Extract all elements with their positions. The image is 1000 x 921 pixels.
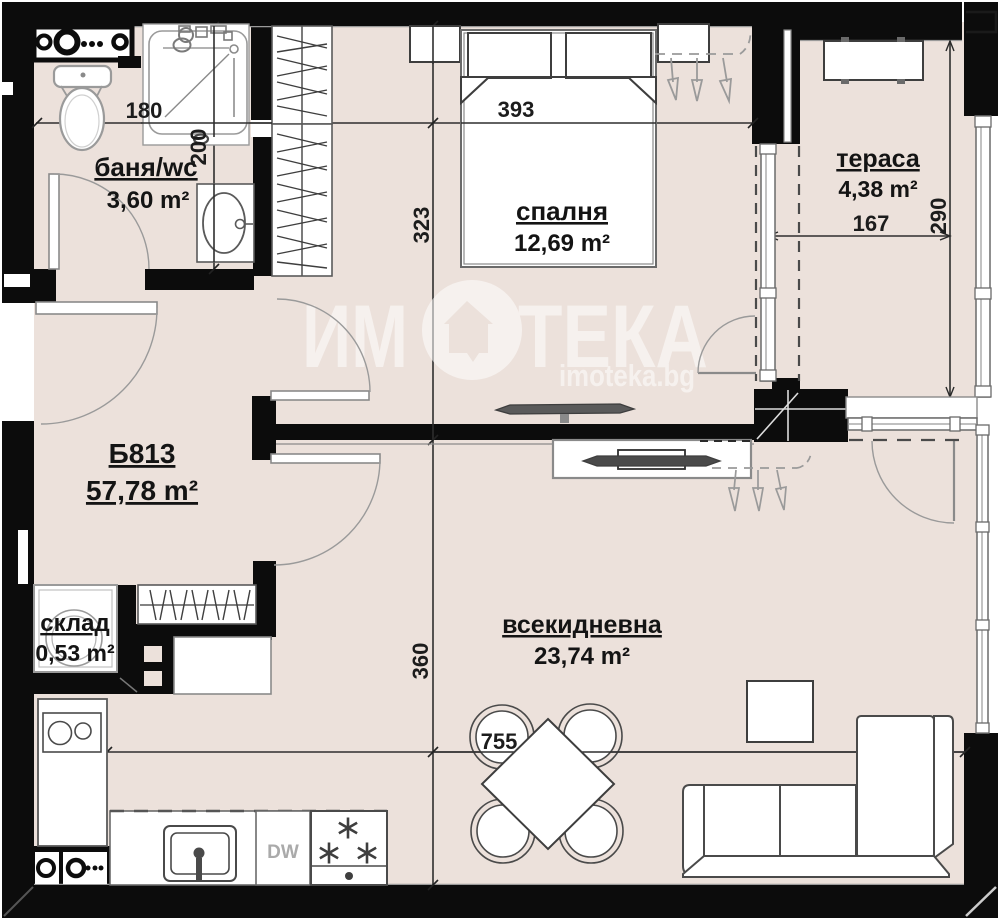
svg-text:DW: DW bbox=[267, 842, 299, 863]
svg-text:167: 167 bbox=[853, 211, 890, 236]
svg-text:спалня: спалня bbox=[516, 196, 608, 226]
svg-text:12,69 m²: 12,69 m² bbox=[514, 230, 610, 257]
svg-text:200: 200 bbox=[186, 129, 211, 166]
svg-text:imoteka.bg: imoteka.bg bbox=[559, 358, 695, 393]
svg-text:Б813: Б813 bbox=[109, 438, 176, 469]
svg-text:4,38 m²: 4,38 m² bbox=[838, 176, 918, 202]
svg-text:ИМ: ИМ bbox=[302, 286, 408, 386]
svg-text:180: 180 bbox=[126, 98, 163, 123]
svg-text:баня/wc: баня/wc bbox=[94, 152, 197, 182]
svg-text:0,53 m²: 0,53 m² bbox=[35, 640, 115, 666]
svg-text:23,74 m²: 23,74 m² bbox=[534, 643, 630, 670]
svg-text:290: 290 bbox=[926, 198, 951, 235]
svg-text:3,60 m²: 3,60 m² bbox=[107, 187, 190, 214]
svg-text:393: 393 bbox=[498, 97, 535, 122]
svg-text:тераса: тераса bbox=[836, 145, 921, 173]
svg-text:360: 360 bbox=[408, 643, 433, 680]
svg-text:склад: склад bbox=[40, 610, 109, 637]
svg-text:323: 323 bbox=[409, 207, 434, 244]
svg-text:всекидневна: всекидневна bbox=[502, 611, 663, 639]
svg-text:57,78 m²: 57,78 m² bbox=[86, 475, 198, 506]
svg-text:755: 755 bbox=[481, 729, 518, 754]
